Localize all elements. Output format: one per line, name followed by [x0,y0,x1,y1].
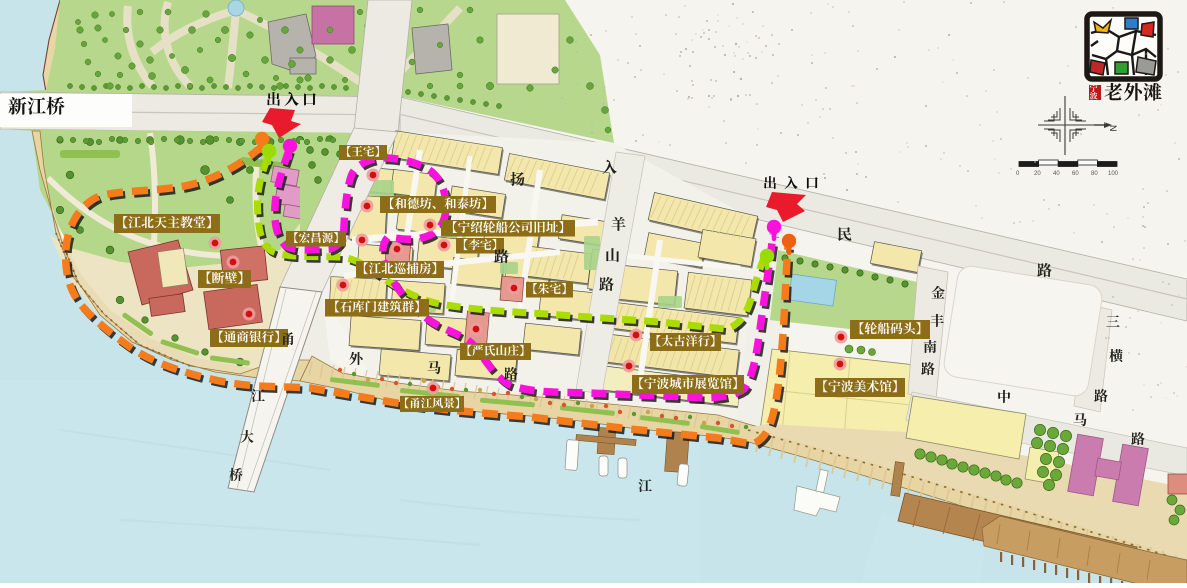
svg-text:40: 40 [1053,171,1060,177]
svg-text:60: 60 [1072,171,1079,177]
svg-text:100: 100 [1108,171,1119,177]
svg-text:20: 20 [1034,171,1041,177]
svg-text:80: 80 [1091,171,1098,177]
svg-text:N: N [1108,125,1118,132]
